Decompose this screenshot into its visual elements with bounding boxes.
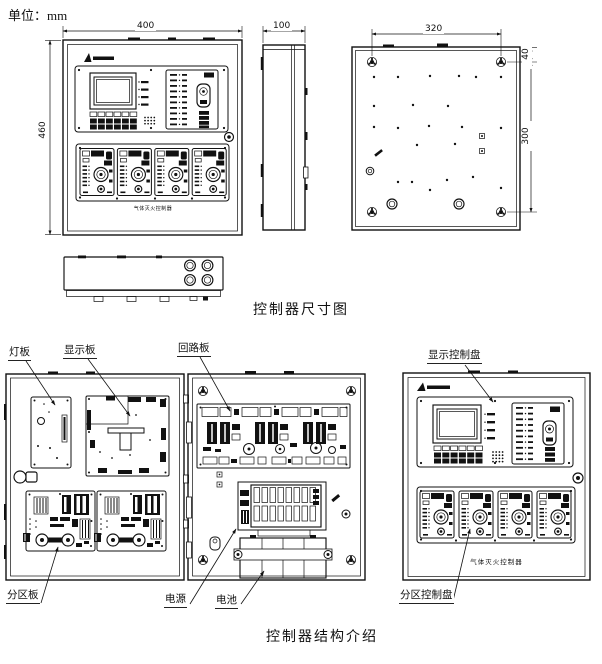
- knockout-icon: [387, 199, 397, 209]
- relay-cluster: [255, 422, 288, 444]
- light-board: [31, 397, 71, 468]
- label-power-supply: 电源: [164, 594, 187, 608]
- leader-lines: [26, 357, 493, 604]
- product-name-front: 气体灭火控制器: [403, 556, 590, 566]
- side-view: [261, 45, 308, 230]
- keypad: [90, 112, 137, 130]
- brand-logo-icon: [417, 383, 450, 392]
- zone-module: [420, 491, 454, 538]
- corner-screw-icon: [346, 386, 355, 395]
- dim-front-height: 460: [39, 115, 49, 145]
- dim-front-width: 400: [135, 22, 156, 31]
- speaker-grille-icon: [144, 117, 155, 125]
- label-battery: 电池: [215, 595, 238, 609]
- mounting-screw-icon: [496, 57, 505, 66]
- label-zone-board: 分区板: [6, 590, 40, 604]
- lcd-screen: [90, 73, 136, 109]
- back-view: [352, 44, 520, 231]
- structure-door-view: [4, 372, 189, 581]
- zone-module: [459, 491, 493, 538]
- zone-module: [498, 491, 532, 538]
- display-board: [86, 396, 169, 476]
- structure-front-view: [403, 371, 590, 581]
- label-zone-control-panel: 分区控制盘: [399, 590, 454, 604]
- product-name-front: 气体灭火控制器: [63, 205, 243, 212]
- dim-back-hole-span: 320: [423, 25, 444, 34]
- corner-screw-icon: [198, 386, 207, 395]
- key-switch-icon: [543, 421, 556, 445]
- lcd-side-indicators: [138, 81, 148, 106]
- dim-back-hole-height: 300: [522, 121, 532, 151]
- relay-cluster: [207, 422, 240, 444]
- lcd-side-indicators: [484, 413, 495, 439]
- speaker-grille-icon: [492, 451, 503, 462]
- vent-holes: [373, 75, 502, 191]
- unit-label: 单位：mm: [8, 5, 67, 24]
- mounting-screw-icon: [367, 207, 376, 216]
- indicator-panel: [166, 70, 218, 129]
- door-latch-knob: [14, 471, 37, 483]
- indicator-panel: [512, 403, 564, 464]
- dim-side-depth: 100: [271, 22, 292, 31]
- knockout-icon: [454, 199, 464, 209]
- zone-driver-board: [23, 491, 95, 551]
- caption-structure-intro: 控制器结构介绍: [266, 626, 378, 646]
- battery: [234, 535, 332, 578]
- label-display-board: 显示板: [63, 345, 97, 359]
- door-lock-icon: [573, 473, 583, 483]
- corner-screw-icon: [346, 555, 355, 564]
- key-switch-icon: [197, 84, 210, 107]
- zone-module: [537, 491, 571, 538]
- brand-logo-icon: [84, 53, 114, 62]
- loop-board: [197, 404, 350, 468]
- power-supply: [238, 482, 326, 536]
- lcd-screen: [433, 405, 481, 443]
- label-display-control-panel: 显示控制盘: [427, 350, 482, 364]
- bottom-view: [64, 256, 223, 302]
- mounting-screw-icon: [367, 57, 376, 66]
- keypad: [434, 446, 483, 464]
- structure-cabinet-view: [187, 371, 366, 580]
- dim-back-top-offset: 40: [522, 39, 532, 69]
- zone-module: [155, 149, 189, 196]
- label-light-board: 灯板: [8, 347, 31, 361]
- mounting-screw-icon: [496, 207, 505, 216]
- zone-module: [117, 149, 151, 196]
- corner-screw-icon: [198, 555, 207, 564]
- label-loop-board: 回路板: [177, 343, 211, 357]
- caption-dimension-diagram: 控制器尺寸图: [253, 299, 349, 319]
- zone-driver-board: [94, 491, 166, 551]
- zone-module: [192, 149, 226, 196]
- relay-cluster: [303, 422, 336, 444]
- door-lock-icon: [225, 133, 234, 142]
- manual-page: 单位：mm 400 460 100 320 40 300 控制器尺寸图 控制器结…: [0, 0, 602, 664]
- cable-entry-holes: [185, 260, 213, 285]
- zone-module: [80, 149, 114, 196]
- dimension-lines: [45, 26, 537, 235]
